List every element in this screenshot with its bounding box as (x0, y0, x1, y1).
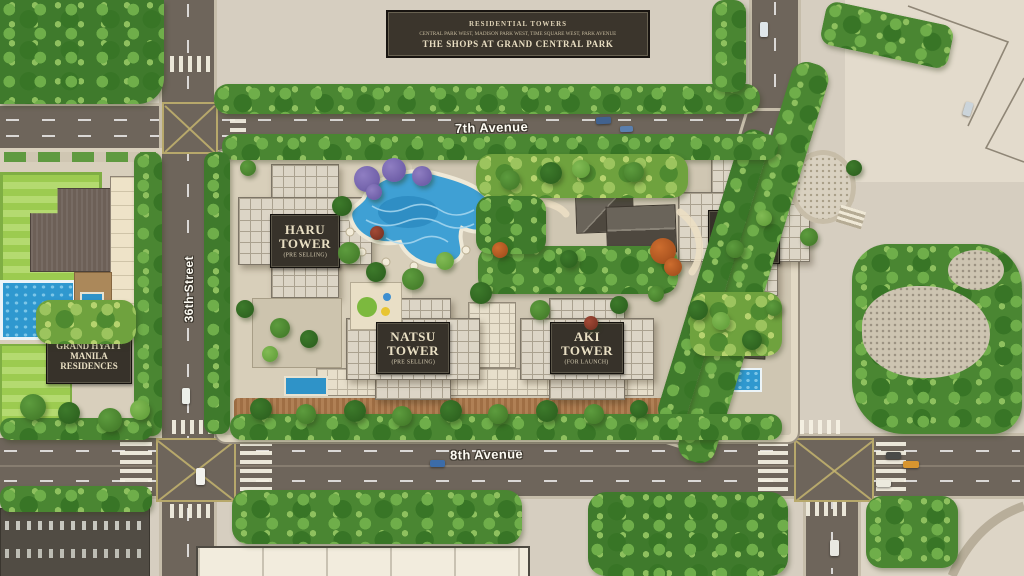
car (760, 22, 768, 37)
tree-red (370, 226, 384, 240)
aki-status: (FOR LAUNCH) (565, 359, 609, 365)
car (886, 452, 901, 459)
tree-green (712, 312, 730, 330)
tree-green (20, 394, 46, 420)
tree-green (688, 300, 708, 320)
crosswalk (170, 504, 214, 518)
street-label-36th-street: 36th Street (182, 256, 196, 322)
haru-name: HARU (285, 223, 325, 237)
car (596, 117, 611, 125)
tree-green (572, 160, 590, 178)
natsu-status: (PRE SELLING) (391, 359, 435, 365)
natsu-word: TOWER (387, 344, 439, 358)
tree-green (270, 318, 290, 338)
playground-slide (381, 307, 390, 316)
tree-green (624, 162, 644, 182)
street-label-8th-avenue: 8th Avenue (450, 446, 523, 462)
stone-plaza (862, 286, 990, 378)
crosswalk (170, 56, 210, 72)
tree-green (648, 286, 664, 302)
tree-green (262, 346, 278, 362)
parking-lot (0, 508, 150, 576)
tree-green (236, 300, 254, 318)
tree-mass (232, 490, 522, 544)
tree-mass (0, 0, 164, 104)
tree-green (766, 300, 782, 316)
tree-green (630, 400, 648, 418)
tower-aki-label: AKI TOWER (FOR LAUNCH) (550, 322, 624, 374)
tree-purple (366, 184, 382, 200)
tree-mass (204, 152, 230, 434)
car (876, 480, 891, 487)
tree-green (250, 398, 272, 420)
tree-green (58, 402, 80, 424)
tree-green (500, 170, 520, 190)
tree-green (392, 406, 412, 426)
tree-green (560, 250, 578, 268)
car (620, 126, 633, 132)
tree-mass (134, 152, 162, 436)
intersection-diagonal-8th (794, 438, 874, 502)
playground-pool-toy (383, 293, 391, 301)
tree-green (536, 400, 558, 422)
stone-plaza-small (948, 250, 1004, 290)
lane-marking (6, 119, 776, 121)
aki-name: AKI (574, 330, 600, 344)
tree-green (338, 242, 360, 264)
tree-green (296, 404, 316, 424)
tree-mass (588, 492, 788, 576)
crosswalk (758, 442, 788, 492)
tree-green (332, 196, 352, 216)
tree-green (742, 330, 762, 350)
tree-red (584, 316, 598, 330)
tree-orange (492, 242, 508, 258)
car (903, 461, 919, 468)
natsu-name: NATSU (390, 330, 436, 344)
banner-title: RESIDENTIAL TOWERS (469, 20, 567, 28)
lane-marking (774, 2, 776, 102)
tree-green (240, 160, 256, 176)
tree-mass (214, 84, 760, 114)
haru-status: (PRE SELLING) (283, 252, 327, 258)
crosswalk (806, 502, 850, 516)
tree-mass (712, 0, 746, 92)
project-banner: RESIDENTIAL TOWERS CENTRAL PARK WEST, MA… (386, 10, 650, 58)
tree-mass (476, 196, 546, 254)
tree-green (846, 160, 862, 176)
garden-steps (836, 205, 866, 230)
tree-green (726, 240, 744, 258)
crosswalk (800, 420, 844, 434)
lap-pool-west (284, 376, 328, 396)
car (182, 388, 190, 404)
tree-purple (412, 166, 432, 186)
site-plan-map: GRAND HYATT MANILA RESIDENCES HARU TOWER… (0, 0, 1024, 576)
tree-mass (0, 486, 152, 512)
crosswalk (120, 442, 152, 492)
tree-green (344, 400, 366, 422)
car (196, 468, 205, 485)
tree-orange (664, 258, 682, 276)
street-label-7th-avenue: 7th Avenue (455, 119, 528, 136)
tree-green (610, 296, 628, 314)
tree-green (488, 404, 508, 424)
tree-green (130, 400, 150, 420)
tree-green (530, 300, 550, 320)
tree-green (98, 408, 122, 432)
haru-word: TOWER (279, 237, 331, 251)
parked-cars-row (5, 521, 143, 530)
banner-footer: THE SHOPS AT GRAND CENTRAL PARK (423, 39, 614, 49)
tree-purple (382, 158, 406, 182)
tree-mass (866, 496, 958, 568)
tower-haru-label: HARU TOWER (PRE SELLING) (270, 214, 340, 268)
aki-word: TOWER (561, 344, 613, 358)
tree-mass (36, 300, 136, 344)
tree-green (756, 210, 772, 226)
building-south-roof (196, 546, 530, 576)
tree-green (800, 228, 818, 246)
tree-green (436, 252, 454, 270)
intersection-36th-7th (162, 102, 218, 154)
car (430, 460, 445, 467)
tree-green (440, 400, 462, 422)
playground-lawn-circle (357, 297, 377, 317)
parked-cars-row (5, 549, 143, 558)
tree-green (540, 162, 562, 184)
tree-green (470, 282, 492, 304)
car (830, 540, 839, 556)
hyatt-label-line3: RESIDENCES (60, 362, 118, 372)
banner-subtitle: CENTRAL PARK WEST, MADISON PARK WEST, TI… (420, 30, 617, 36)
tower-natsu-label: NATSU TOWER (PRE SELLING) (376, 322, 450, 374)
crosswalk (240, 442, 272, 492)
tree-green (402, 268, 424, 290)
tree-green (366, 262, 386, 282)
tree-green (584, 404, 604, 424)
tower-haru: HARU TOWER (PRE SELLING) (238, 164, 370, 296)
tree-green (300, 330, 318, 348)
